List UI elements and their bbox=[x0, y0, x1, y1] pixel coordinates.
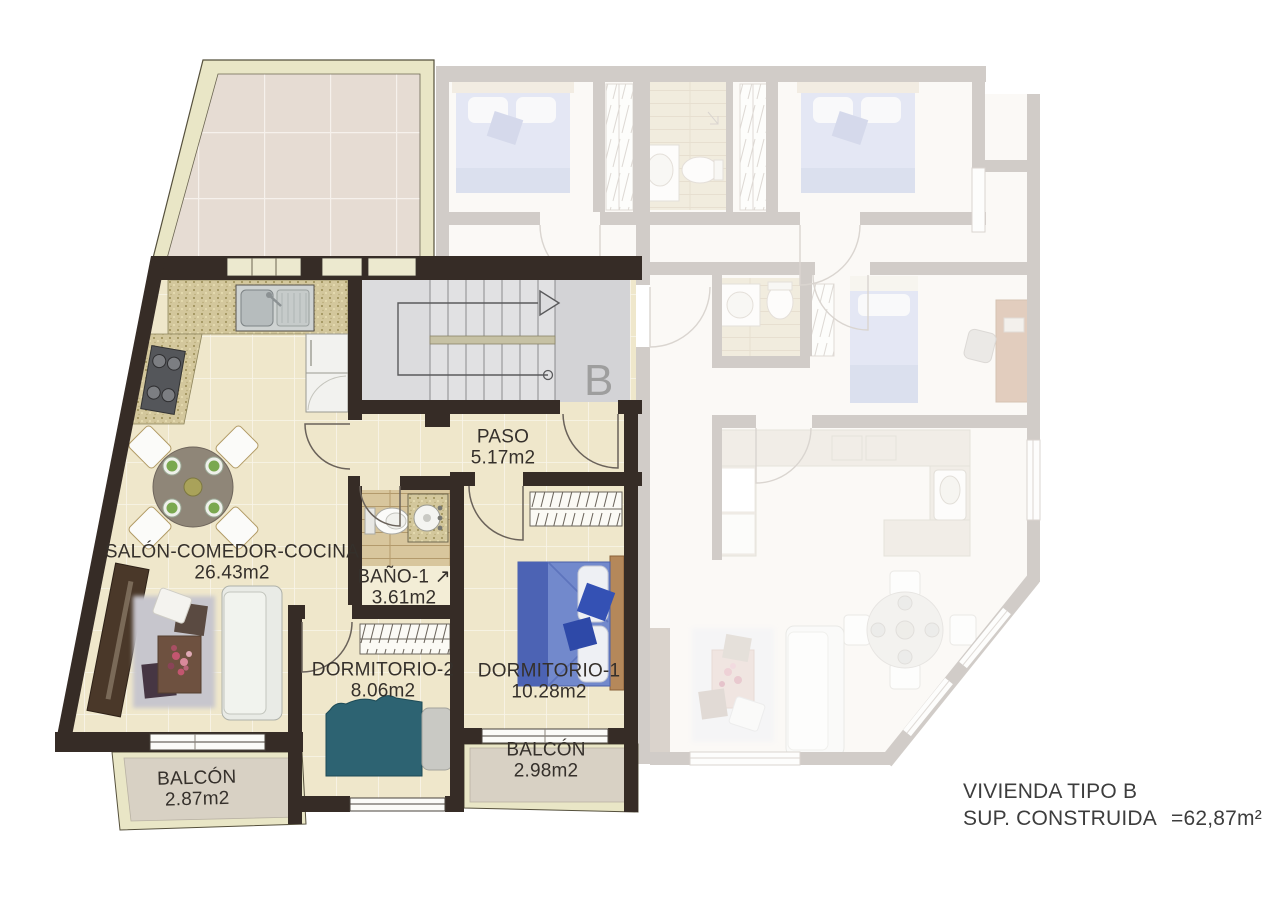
bano1-area: 3.61m2 bbox=[357, 588, 451, 609]
faded-wardrobe-left bbox=[606, 84, 633, 210]
room-label-salon: SALÓN-COMEDOR-COCINA 26.43m2 bbox=[105, 542, 359, 585]
plan-title-line2: SUP. CONSTRUIDA=62,87m² bbox=[963, 805, 1262, 832]
kitchen-terrace-window-2 bbox=[322, 258, 362, 276]
toilet bbox=[365, 508, 409, 534]
stair-unit-letter: B bbox=[584, 356, 614, 406]
paso-name: PASO bbox=[471, 427, 536, 448]
balcon2-area: 2.98m2 bbox=[506, 761, 585, 782]
room-label-paso: PASO 5.17m2 bbox=[471, 427, 536, 470]
bedroom2-window bbox=[350, 798, 445, 811]
dormitorio1-area: 10.28m2 bbox=[478, 682, 620, 703]
room-label-dormitorio2: DORMITORIO-2 8.06m2 bbox=[312, 660, 454, 703]
balcon1-name: BALCÓN bbox=[157, 767, 237, 790]
kitchen-terrace-window bbox=[227, 258, 301, 276]
faded-bed-left bbox=[452, 78, 574, 193]
room-label-balcon1: BALCÓN 2.87m2 bbox=[157, 767, 237, 812]
built-area-value: =62,87m² bbox=[1171, 805, 1262, 832]
dormitorio1-name: DORMITORIO-1 bbox=[478, 661, 620, 682]
bano1-name: BAÑO-1 ↗ bbox=[357, 567, 451, 588]
faded-wardrobe-right bbox=[740, 84, 767, 210]
bathroom-vanity bbox=[408, 494, 448, 542]
room-label-balcon2: BALCÓN 2.98m2 bbox=[506, 740, 585, 783]
paso-area: 5.17m2 bbox=[471, 448, 536, 469]
floorplan-canvas: SALÓN-COMEDOR-COCINA 26.43m2 PASO 5.17m2… bbox=[0, 0, 1280, 905]
coffee-table bbox=[158, 636, 201, 693]
wardrobe-dormitorio-2 bbox=[360, 624, 450, 654]
terrace bbox=[152, 60, 434, 262]
sofa bbox=[222, 586, 282, 720]
balcon2-name: BALCÓN bbox=[506, 740, 585, 761]
stair-landing-rail bbox=[430, 336, 555, 344]
wardrobe-dormitorio-1 bbox=[530, 492, 622, 526]
plan-title-block: VIVIENDA TIPO B SUP. CONSTRUIDA=62,87m² bbox=[963, 778, 1262, 832]
room-label-dormitorio1: DORMITORIO-1 10.28m2 bbox=[478, 661, 620, 704]
salon-name: SALÓN-COMEDOR-COCINA bbox=[105, 542, 359, 563]
kitchen-appliances bbox=[306, 334, 348, 412]
balcon1-area: 2.87m2 bbox=[157, 788, 237, 811]
faded-bed-right bbox=[797, 78, 919, 193]
dormitorio2-name: DORMITORIO-2 bbox=[312, 660, 454, 681]
stair-terrace-window bbox=[368, 258, 416, 276]
kitchen-sink bbox=[236, 285, 314, 331]
plan-title-line1: VIVIENDA TIPO B bbox=[963, 778, 1262, 805]
salon-area: 26.43m2 bbox=[105, 563, 359, 584]
bed-dormitorio-2 bbox=[326, 696, 452, 776]
north-arrow-icon: ↗ bbox=[435, 566, 451, 588]
dormitorio2-area: 8.06m2 bbox=[312, 681, 454, 702]
room-label-bano1: BAÑO-1 ↗ 3.61m2 bbox=[357, 567, 451, 610]
living-balcony-window bbox=[150, 734, 265, 750]
faded-bed3 bbox=[850, 276, 918, 403]
